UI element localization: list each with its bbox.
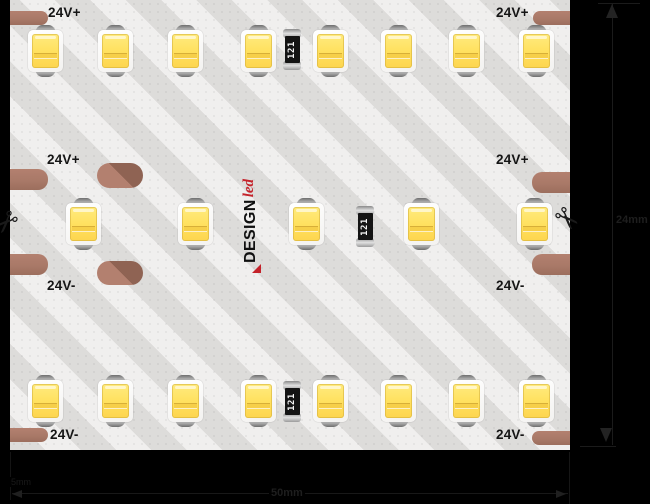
resistor: 121	[355, 206, 375, 247]
dim-width-line	[612, 4, 613, 445]
led-chip	[182, 207, 209, 241]
led	[381, 25, 416, 77]
led-body	[381, 30, 416, 72]
led-body	[381, 380, 416, 422]
label-24v-minus: 24V-	[50, 427, 79, 442]
led-chip	[102, 34, 129, 68]
dim-length-ext-left	[10, 452, 11, 500]
led	[66, 198, 101, 250]
solder-pad-top-left	[10, 11, 48, 25]
led-body	[404, 203, 439, 245]
led-chip	[523, 384, 550, 418]
led-body	[313, 380, 348, 422]
led-chip	[245, 384, 272, 418]
arrow-right-icon	[556, 490, 566, 498]
solder-pad-mid-inner-plus	[97, 163, 143, 188]
led	[98, 375, 133, 427]
led	[28, 375, 63, 427]
label-24v-plus: 24V+	[496, 5, 529, 20]
resistor-body: 121	[285, 388, 300, 415]
led-chip	[453, 384, 480, 418]
led-chip	[523, 34, 550, 68]
led	[168, 375, 203, 427]
led-chip	[408, 207, 435, 241]
solder-pad-mid-inner-minus	[97, 261, 143, 285]
led	[517, 198, 552, 250]
led	[241, 25, 276, 77]
dim-length-ext-right	[569, 452, 570, 504]
led-chip	[102, 384, 129, 418]
led-body	[28, 30, 63, 72]
led-chip	[453, 34, 480, 68]
led	[241, 375, 276, 427]
solder-pad-mid-right-minus	[532, 254, 570, 275]
led-body	[66, 203, 101, 245]
label-24v-minus: 24V-	[496, 427, 525, 442]
label-24v-minus: 24V-	[496, 278, 525, 293]
led-chip	[385, 384, 412, 418]
solder-pad-bottom-left	[10, 428, 48, 442]
led-strip-diagram: 24V+ 24V+ 24V+ 24V- 24V+ 24V- 24V- 24V- …	[0, 0, 650, 504]
resistor: 121	[282, 381, 302, 422]
resistor-code: 121	[287, 393, 297, 411]
led-body	[98, 380, 133, 422]
led-chip	[317, 384, 344, 418]
led	[381, 375, 416, 427]
logo-brand-text: DESIGN	[242, 199, 260, 263]
led	[178, 198, 213, 250]
led	[404, 198, 439, 250]
led-chip	[245, 34, 272, 68]
led-body	[449, 380, 484, 422]
logo-triangle-accent	[252, 264, 261, 273]
solder-pad-mid-left-plus	[10, 169, 48, 190]
led-chip	[521, 207, 548, 241]
brand-logo: DESIGN led	[238, 171, 264, 281]
resistor-body: 121	[285, 36, 300, 63]
dim-pitch-label: 5mm	[9, 477, 33, 487]
resistor: 121	[282, 29, 302, 70]
led-body	[98, 30, 133, 72]
label-24v-plus: 24V+	[496, 152, 529, 167]
led-body	[241, 30, 276, 72]
led-chip	[385, 34, 412, 68]
led-body	[241, 380, 276, 422]
led-chip	[172, 384, 199, 418]
led-chip	[32, 384, 59, 418]
led	[98, 25, 133, 77]
led	[168, 25, 203, 77]
led-chip	[293, 207, 320, 241]
label-24v-plus: 24V+	[48, 5, 81, 20]
led-body	[289, 203, 324, 245]
dim-length-label: 50mm	[269, 487, 305, 499]
led-chip	[317, 34, 344, 68]
dim-width-tick-top	[598, 3, 640, 4]
led-body	[28, 380, 63, 422]
led-chip	[70, 207, 97, 241]
resistor-code: 121	[360, 218, 370, 236]
led	[313, 375, 348, 427]
dim-width-label: 24mm	[614, 214, 650, 226]
arrow-up-icon	[606, 4, 618, 18]
led-body	[168, 380, 203, 422]
led-body	[313, 30, 348, 72]
led-body	[519, 30, 554, 72]
logo-led-text: led	[241, 179, 258, 197]
solder-pad-top-right	[533, 11, 570, 25]
resistor-body: 121	[358, 213, 373, 240]
solder-pad-mid-right-plus	[532, 172, 570, 193]
led-body	[449, 30, 484, 72]
label-24v-minus: 24V-	[47, 278, 76, 293]
resistor-code: 121	[287, 41, 297, 59]
led	[289, 198, 324, 250]
led	[449, 375, 484, 427]
led-chip	[32, 34, 59, 68]
led	[519, 25, 554, 77]
led-body	[517, 203, 552, 245]
led-chip	[172, 34, 199, 68]
led-body	[178, 203, 213, 245]
led	[313, 25, 348, 77]
solder-pad-mid-left-minus	[10, 254, 48, 275]
led	[28, 25, 63, 77]
label-24v-plus: 24V+	[47, 152, 80, 167]
led	[519, 375, 554, 427]
arrow-down-icon	[600, 428, 612, 442]
led-body	[168, 30, 203, 72]
arrow-left-icon	[12, 490, 22, 498]
solder-pad-bottom-right	[532, 431, 570, 445]
led	[449, 25, 484, 77]
led-body	[519, 380, 554, 422]
dim-width-tick-bottom	[580, 446, 616, 447]
